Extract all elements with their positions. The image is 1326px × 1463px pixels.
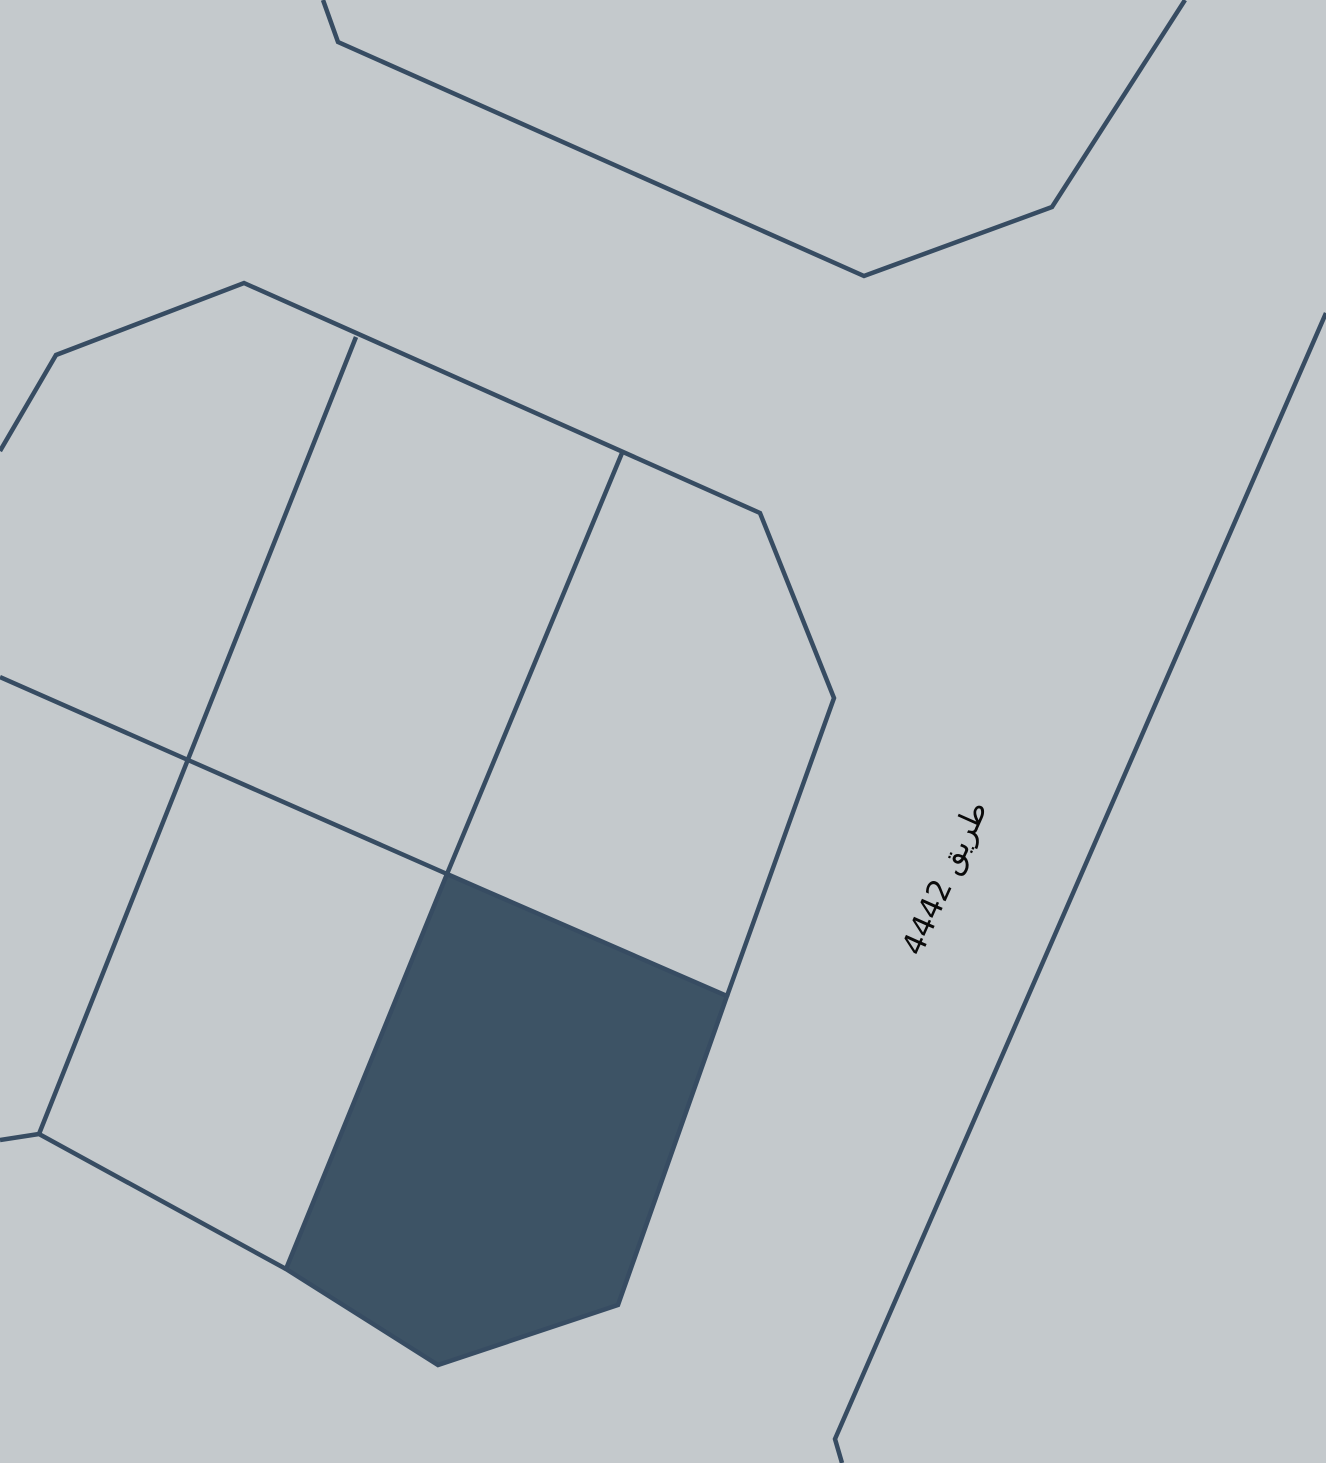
road-right-edge (835, 313, 1326, 1463)
parcel-divider-right (447, 453, 622, 874)
map-viewport[interactable]: طريق 4442 (0, 0, 1326, 1463)
upper-parcel-outline (323, 0, 1185, 276)
block-bottom-boundary (0, 1134, 286, 1269)
parcel-divider-left (39, 337, 356, 1134)
block-outer-boundary (0, 283, 834, 996)
block-row-divider (0, 677, 447, 874)
map-canvas[interactable] (0, 0, 1326, 1463)
selected-parcel[interactable] (286, 874, 727, 1365)
